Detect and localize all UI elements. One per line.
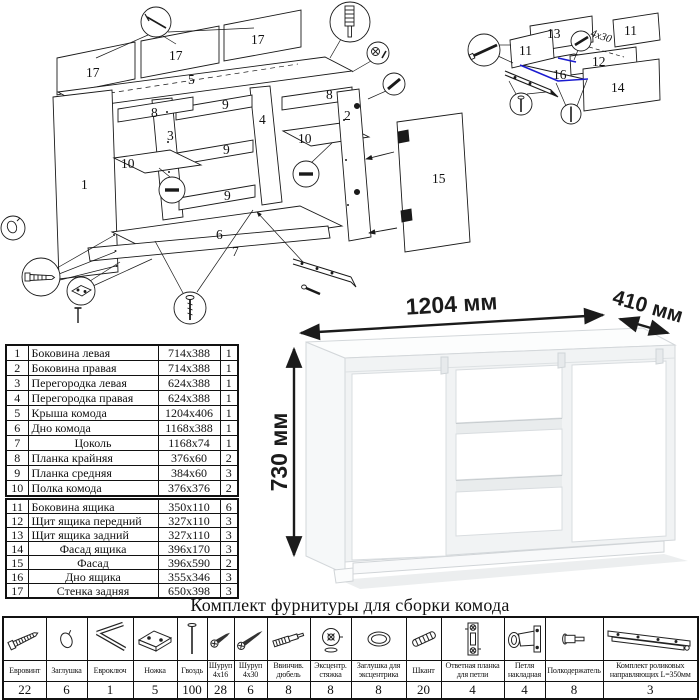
hardware-name: Евровинт (3, 661, 46, 682)
eccentric-callout (352, 42, 389, 72)
table-row: 11Боковина ящика350х1106 (6, 499, 238, 514)
label-6: 6 (216, 227, 223, 242)
right-side-panel (337, 89, 371, 241)
label-11a: 11 (519, 43, 532, 58)
hardware-count-row: 22 6 1 5 100 28 6 8 8 8 20 4 4 8 3 (3, 682, 698, 700)
hinge-icon (505, 619, 545, 659)
label-5: 5 (188, 72, 195, 87)
label-16: 16 (553, 67, 567, 82)
table-row: 14Фасад ящика396х1703 (6, 542, 238, 556)
foot-icon (134, 619, 176, 659)
middle-plank-3 (179, 185, 255, 210)
hardware-icon-row (3, 617, 698, 661)
table-row: 16Дно ящика355х3463 (6, 570, 238, 584)
screw-4x30-icon (235, 619, 267, 659)
parts-table-carcass: 1Боковина левая714х3881 2Боковина правая… (5, 344, 239, 497)
table-row: 1Боковина левая714х3881 (6, 345, 238, 361)
left-door (352, 370, 446, 560)
exploded-view-drawer: 13 11 11 12 16 14 4х30 (455, 0, 700, 140)
table-row: 8Планка крайняя376х602 (6, 451, 238, 466)
table-row: 6Дно комода1168х3881 (6, 421, 238, 436)
hardware-name: Заглушка (46, 661, 87, 682)
dowel-callout-top (368, 73, 405, 99)
table-row: 7Цоколь1168х741 (6, 436, 238, 451)
label-9b: 9 (223, 142, 230, 157)
hardware-count: 5 (133, 682, 177, 700)
assembly-instruction-sheet: { "doc": { "title": "Комплект фурнитуры … (0, 0, 700, 700)
table-row: 10Полка комода376х3762 (6, 481, 238, 497)
table-row: 3Перегородка левая624х3881 (6, 376, 238, 391)
parts-table-drawers: 11Боковина ящика350х1106 12Щит ящика пер… (5, 498, 239, 599)
confirmat-callout (468, 34, 513, 66)
hex-key-icon (88, 619, 132, 659)
hardware-name: Заглушка для эксцентрика (351, 661, 406, 682)
label-9c: 9 (224, 188, 231, 203)
label-3: 3 (167, 128, 174, 143)
drawer-rail (505, 71, 558, 97)
hardware-table: Евровинт Заглушка Евроключ Ножка Гвоздь … (2, 616, 699, 700)
label-8a: 8 (151, 105, 158, 120)
drawer-front-3 (456, 487, 562, 536)
width-dimension: 1204 мм (405, 288, 498, 320)
drawer-front-2 (456, 429, 562, 480)
handle-notch-left (441, 357, 448, 374)
height-dimension: 730 мм (266, 413, 292, 492)
label-2: 2 (344, 108, 351, 123)
dowel-screw-callout (330, 2, 370, 58)
threaded-dowel-icon (268, 619, 310, 659)
dresser-side-left (306, 342, 345, 574)
label-7: 7 (232, 244, 239, 259)
screw-size-note: 4х30 (589, 27, 614, 45)
table-row: 5Крыша комода1204х4061 (6, 406, 238, 421)
hardware-count: 20 (406, 682, 441, 700)
label-17a: 17 (86, 65, 100, 80)
hardware-count: 1 (87, 682, 133, 700)
hardware-kit-title: Комплект фурнитуры для сборки комода (0, 595, 700, 616)
width-arrow (301, 315, 603, 333)
hardware-name-row: Евровинт Заглушка Евроключ Ножка Гвоздь … (3, 661, 698, 682)
eccentric-cam-icon (311, 619, 351, 659)
confirmat-screw-icon (5, 619, 45, 659)
hardware-name: Шуруп 4х30 (234, 661, 267, 682)
screw-4x16-icon (208, 619, 234, 659)
label-11b: 11 (624, 23, 637, 38)
hardware-count: 8 (545, 682, 603, 700)
dresser-foot (334, 568, 353, 583)
hardware-name: Шуруп 4х16 (207, 661, 234, 682)
hardware-count: 3 (603, 682, 698, 700)
label-4: 4 (259, 112, 266, 127)
hardware-name: Ответная планка для петли (441, 661, 504, 682)
table-row: 13Щит ящика задний327х1103 (6, 528, 238, 542)
hardware-count: 4 (504, 682, 545, 700)
label-1: 1 (81, 177, 88, 192)
handle-notch-right (656, 349, 663, 364)
table-row: 4Перегородка правая624х3881 (6, 391, 238, 406)
cap-callout (1, 216, 25, 240)
hardware-name: Гвоздь (177, 661, 207, 682)
hardware-name: Петля накладная (504, 661, 545, 682)
label-10a: 10 (121, 156, 135, 171)
hardware-count: 6 (234, 682, 267, 700)
eccentric-cap-icon (353, 619, 405, 659)
shelf-support-icon (554, 619, 594, 659)
hardware-name: Эксцентр. стяжка (310, 661, 351, 682)
product-render: 1204 мм 410 мм 730 мм (270, 285, 700, 600)
dowel-icon (407, 619, 441, 659)
hardware-name: Евроключ (87, 661, 133, 682)
label-9a: 9 (222, 97, 229, 112)
hardware-name: Ввинчив. дюбель (267, 661, 310, 682)
hardware-count: 8 (267, 682, 310, 700)
label-8b: 8 (326, 87, 333, 102)
hardware-count: 8 (310, 682, 351, 700)
handle-notch-middle (558, 353, 565, 368)
label-12: 12 (592, 54, 606, 69)
roller-guides-icon (604, 619, 696, 659)
label-14: 14 (611, 80, 625, 95)
hardware-count: 22 (3, 682, 46, 700)
hardware-name: Шкант (406, 661, 441, 682)
nail-icon (178, 619, 206, 659)
hardware-name: Полкодержатель (545, 661, 603, 682)
table-row: 9Планка средняя384х603 (6, 466, 238, 481)
depth-dimension: 410 мм (610, 286, 686, 328)
hardware-count: 100 (177, 682, 207, 700)
hardware-name: Ножка (133, 661, 177, 682)
table-row: 12Щит ящика передний327х1103 (6, 514, 238, 528)
label-15: 15 (432, 171, 446, 186)
right-door (572, 361, 666, 542)
nail-callout (556, 80, 587, 124)
label-13: 13 (547, 26, 561, 41)
table-row: 2Боковина правая714х3881 (6, 361, 238, 376)
hardware-count: 28 (207, 682, 234, 700)
cap-icon (47, 619, 87, 659)
hardware-name: Комплект роликовых направляющих L=350мм (603, 661, 698, 682)
drawer-front-1 (456, 365, 562, 423)
shelf-pin-callout-right (293, 143, 332, 187)
dresser-body (306, 328, 675, 583)
hardware-count: 8 (351, 682, 406, 700)
label-10b: 10 (298, 131, 312, 146)
table-row: 15Фасад396х5902 (6, 556, 238, 570)
hinge-plate-icon (453, 619, 493, 659)
label-17c: 17 (251, 32, 265, 47)
hardware-count: 4 (441, 682, 504, 700)
label-17b: 17 (169, 48, 183, 63)
hardware-count: 6 (46, 682, 87, 700)
